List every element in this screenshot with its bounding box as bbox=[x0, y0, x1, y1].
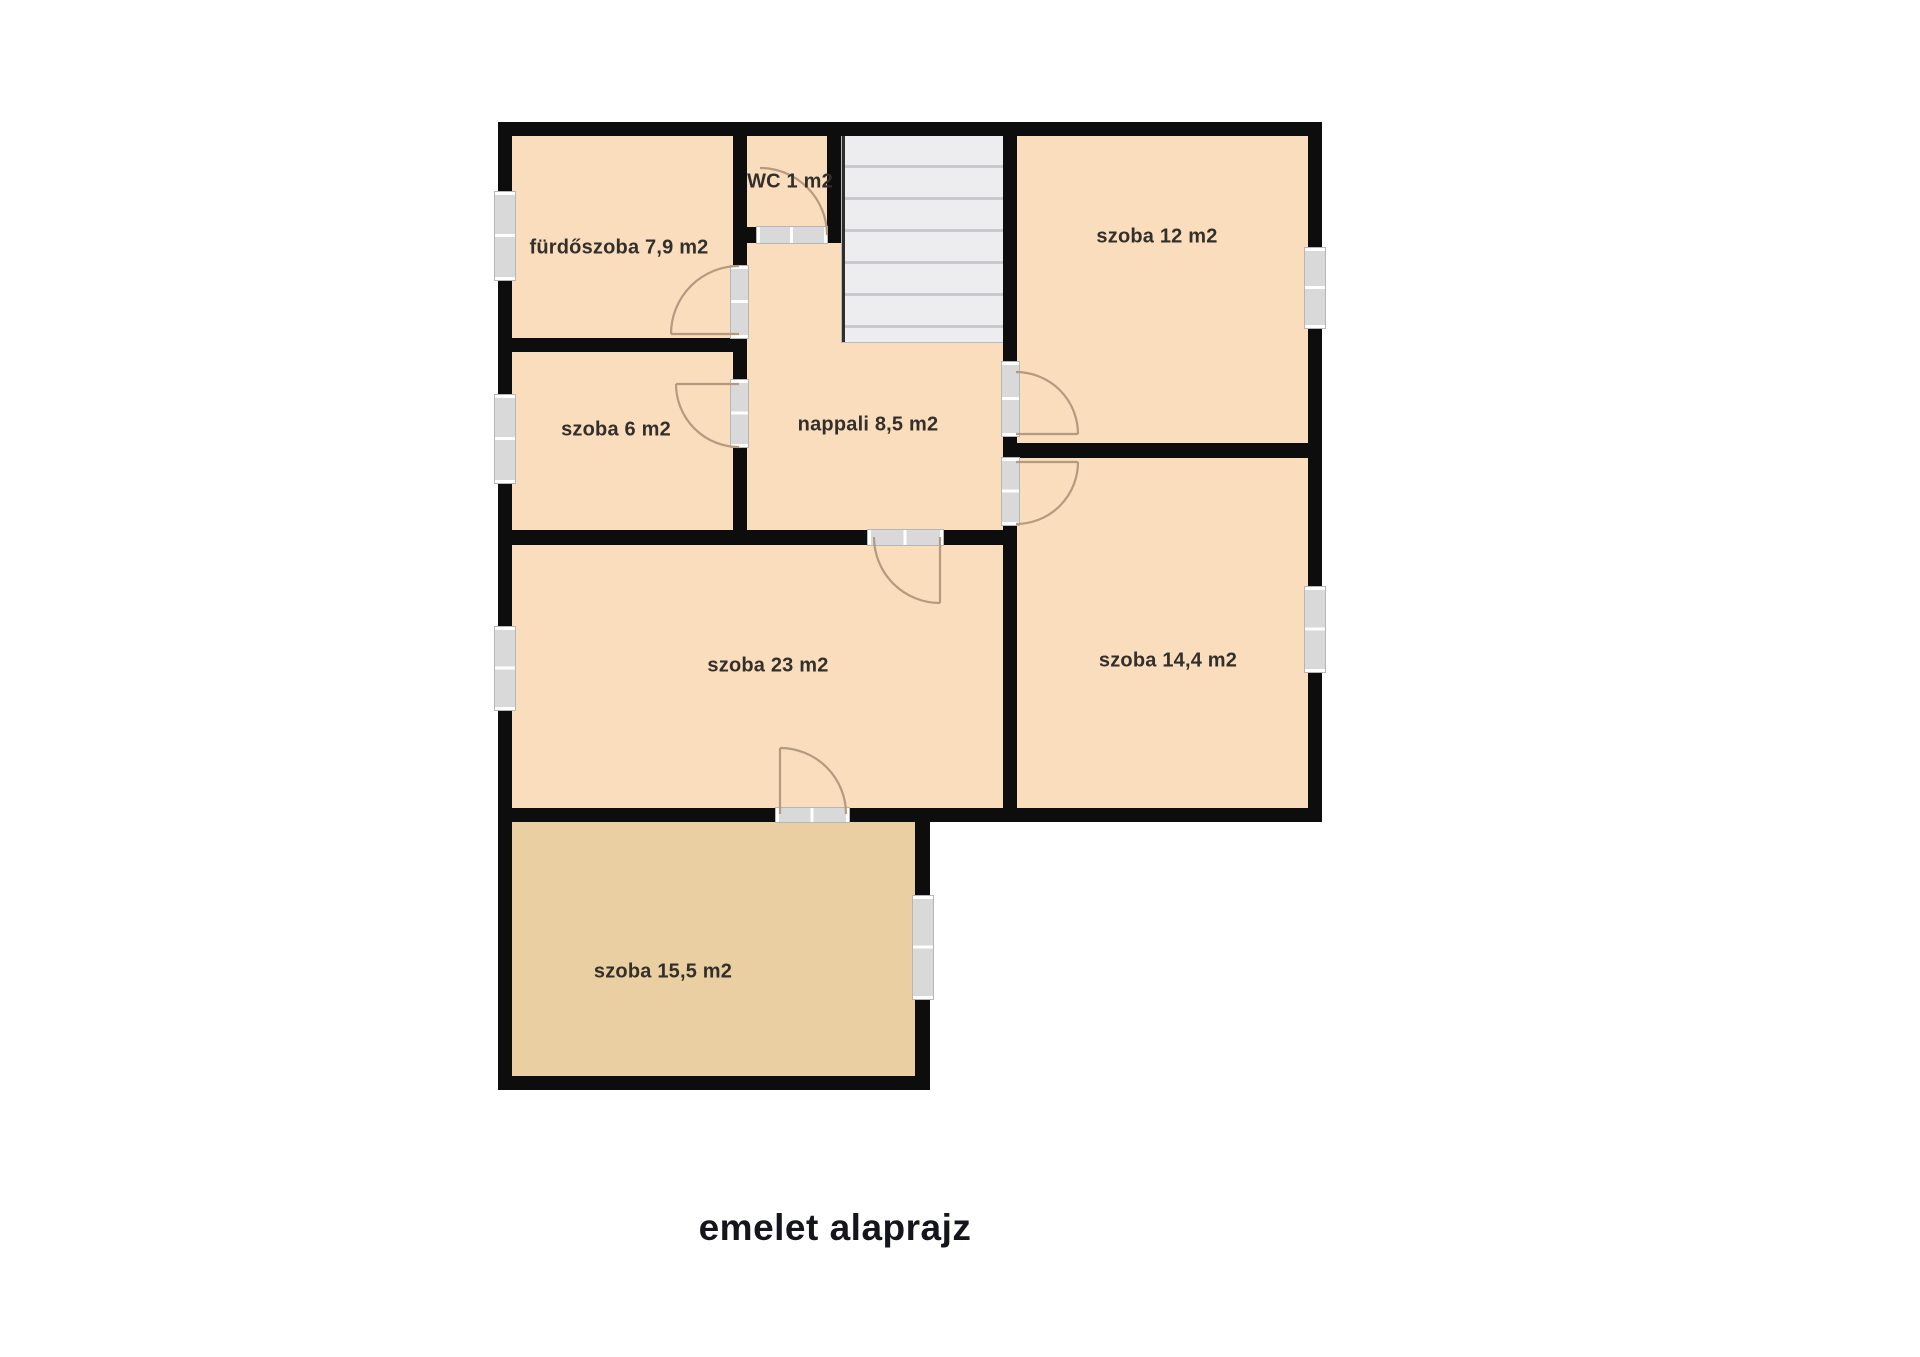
room-label-furdoszoba: fürdőszoba 7,9 m2 bbox=[530, 237, 709, 260]
wall-szoba23-top-left bbox=[512, 530, 868, 545]
window-szoba144-right bbox=[1305, 587, 1325, 672]
wall-exterior-right bbox=[1308, 122, 1322, 822]
wall-exterior-top bbox=[498, 122, 1322, 136]
wall-furdoszoba-szoba6 bbox=[512, 338, 747, 352]
doorframe-szoba23 bbox=[868, 530, 943, 545]
doorframe-furdoszoba bbox=[731, 266, 748, 338]
room-label-szoba-6: szoba 6 m2 bbox=[561, 419, 671, 442]
wall-mid-vertical-between-doors bbox=[733, 338, 747, 380]
floor-area-szoba-15-5 bbox=[512, 822, 915, 1076]
wall-extension-bottom bbox=[498, 1076, 930, 1090]
staircase bbox=[842, 136, 1006, 342]
doorframe-szoba144 bbox=[1002, 458, 1019, 525]
room-label-szoba-14-4: szoba 14,4 m2 bbox=[1099, 650, 1237, 673]
wall-mid-vertical-upper bbox=[733, 136, 747, 266]
room-label-nappali: nappali 8,5 m2 bbox=[798, 414, 939, 437]
floor-plan: fürdőszoba 7,9 m2 WC 1 m2 szoba 12 m2 sz… bbox=[0, 0, 1920, 1357]
wall-nappali-right-lower bbox=[1003, 525, 1017, 808]
wall-bottom-main-left bbox=[498, 808, 776, 822]
doorframe-szoba6 bbox=[731, 380, 748, 447]
wall-bottom-main-right bbox=[849, 808, 1322, 822]
wall-wc-door-stub bbox=[747, 227, 757, 243]
window-szoba6-left bbox=[495, 395, 515, 483]
room-label-szoba-23: szoba 23 m2 bbox=[707, 655, 828, 678]
room-label-wc: WC 1 m2 bbox=[747, 171, 833, 194]
window-furdoszoba-left bbox=[495, 192, 515, 280]
window-szoba155-right bbox=[913, 896, 933, 999]
window-szoba23-left bbox=[495, 627, 515, 710]
page-title: emelet alaprajz bbox=[699, 1207, 972, 1249]
wall-nappali-right-upper bbox=[1003, 136, 1017, 362]
room-label-szoba-15-5: szoba 15,5 m2 bbox=[594, 961, 732, 984]
doorframe-szoba155 bbox=[776, 808, 849, 822]
floor-plan-page: fürdőszoba 7,9 m2 WC 1 m2 szoba 12 m2 sz… bbox=[0, 0, 1920, 1357]
wall-szoba12-szoba144 bbox=[1017, 443, 1308, 458]
wall-nappali-right-middle bbox=[1003, 436, 1017, 458]
room-label-szoba-12: szoba 12 m2 bbox=[1096, 226, 1217, 249]
doorframe-szoba12 bbox=[1002, 362, 1019, 436]
window-szoba12-right bbox=[1305, 248, 1325, 328]
doorframe-wc bbox=[757, 227, 827, 243]
